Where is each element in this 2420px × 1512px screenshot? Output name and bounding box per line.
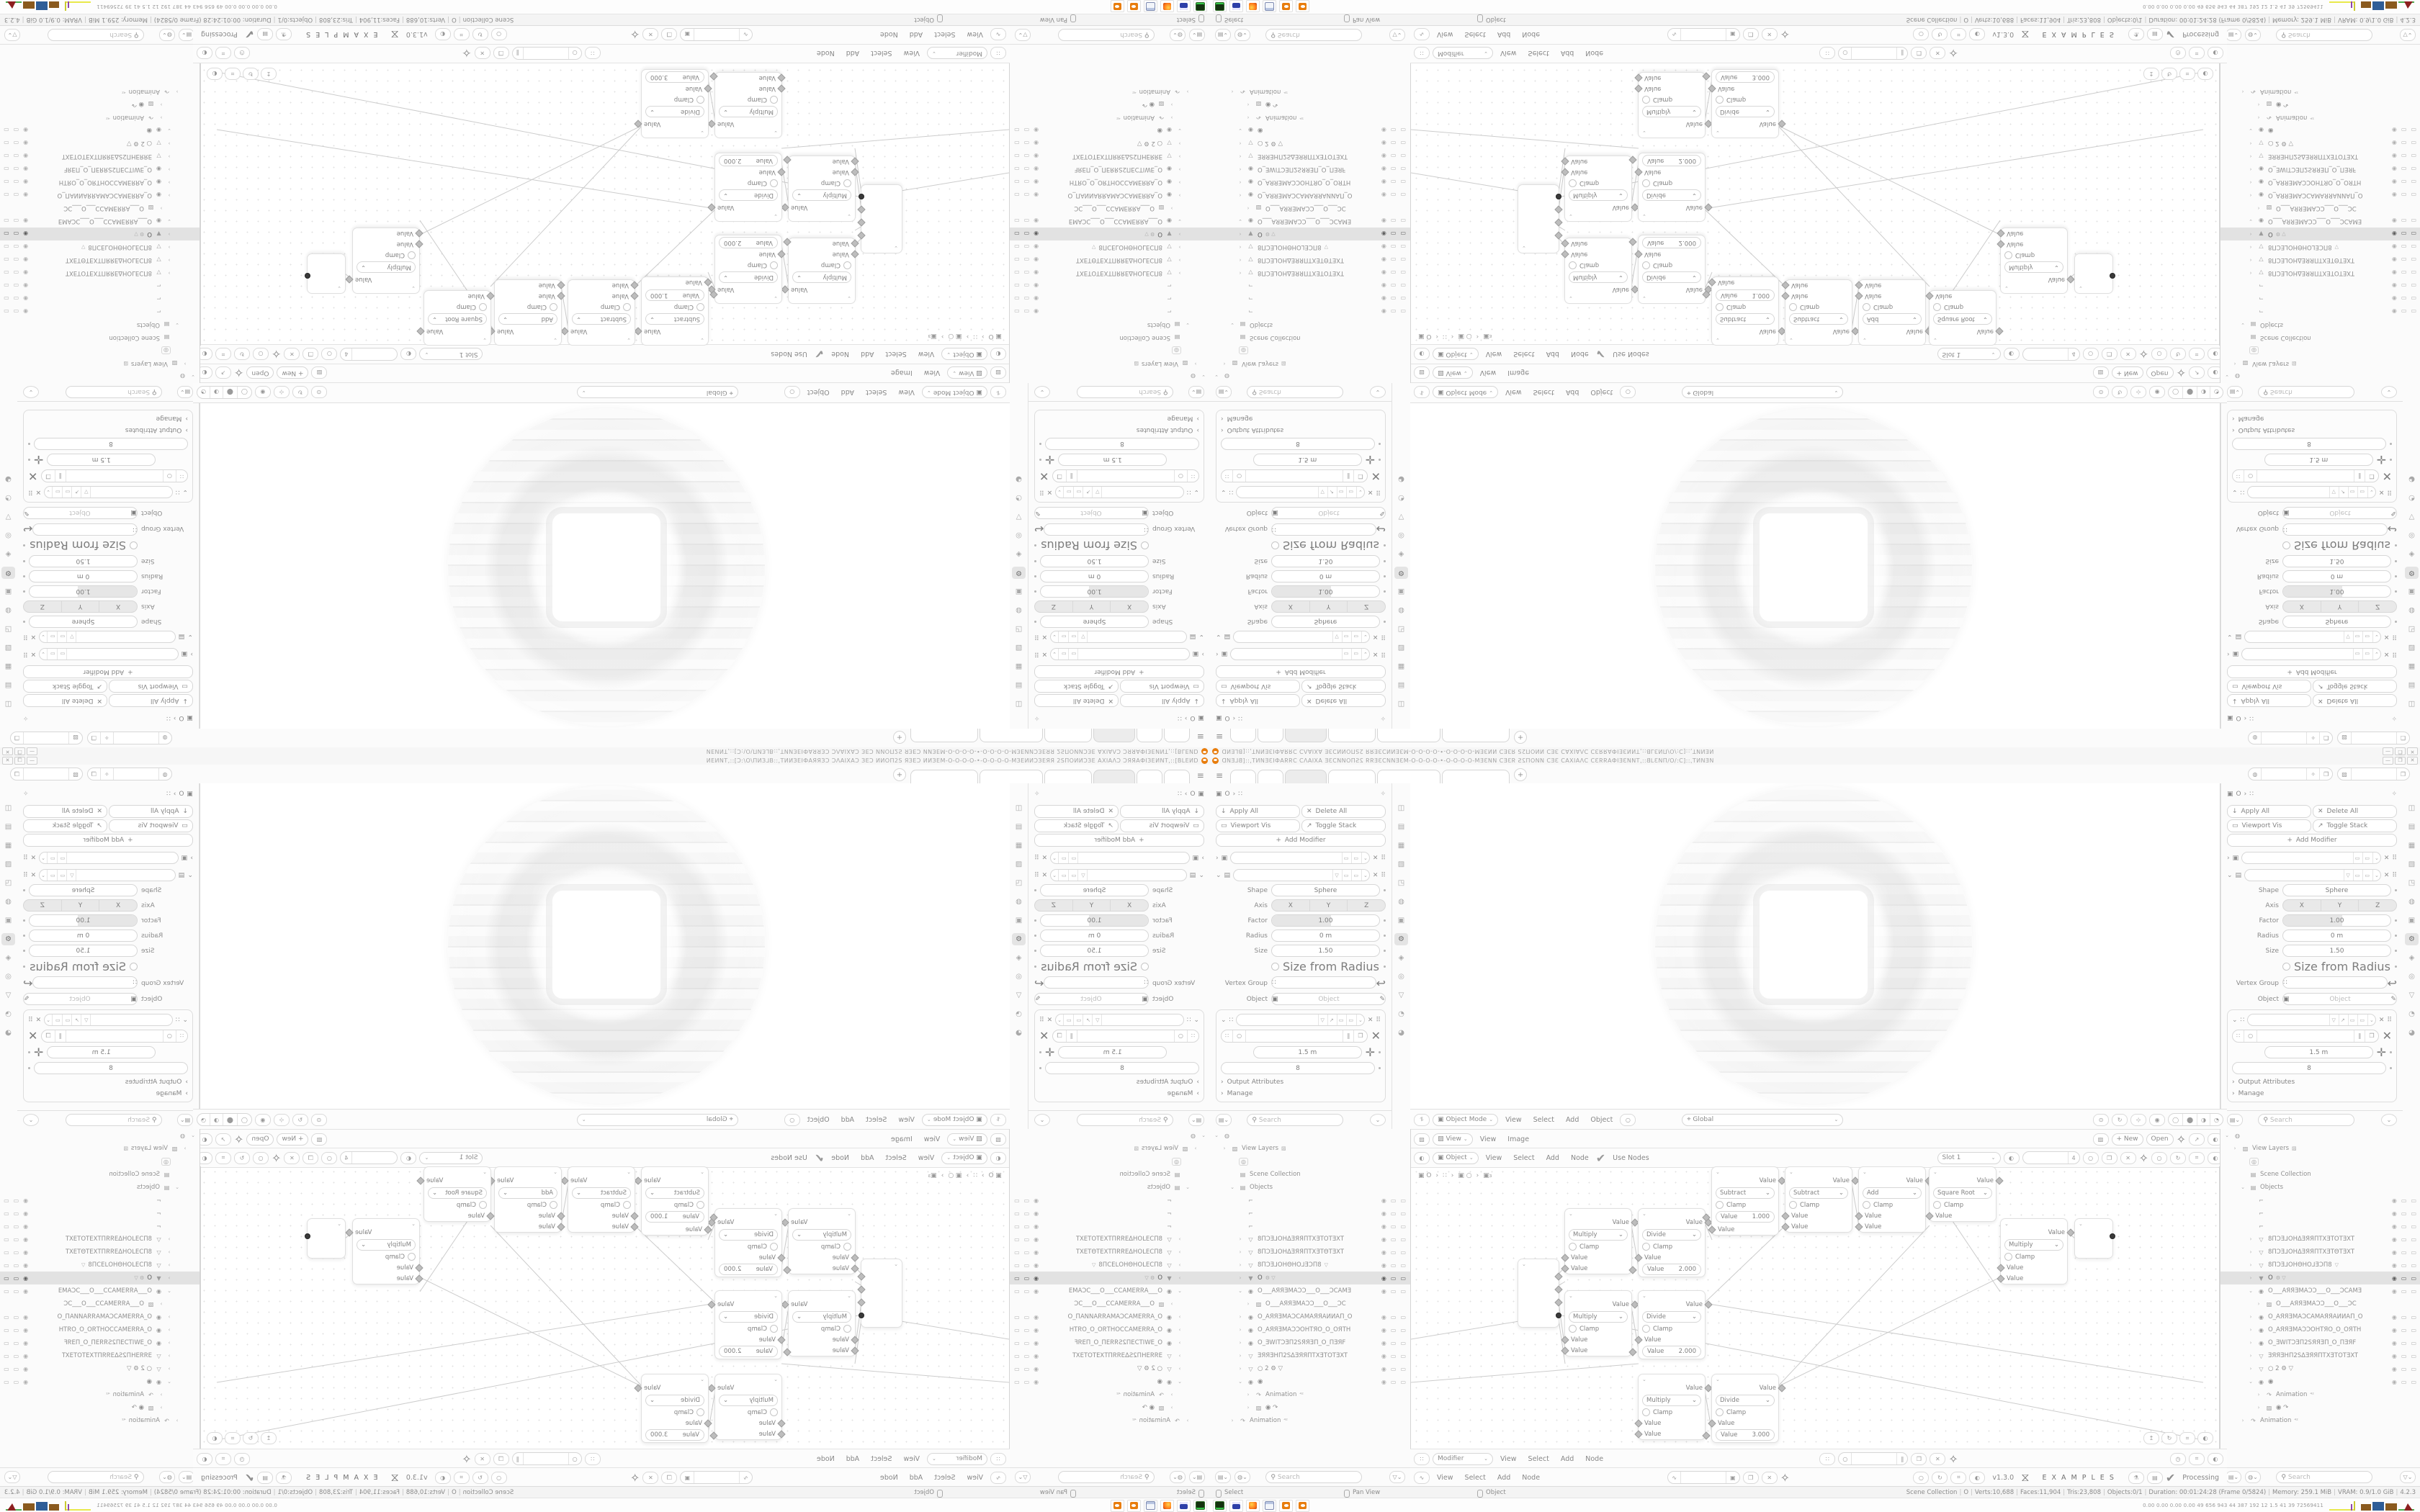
input-socket[interactable]: [1996, 230, 2004, 238]
node-math-multiply[interactable]: ⌄ValueMultiply⌄ClampValueValue: [1638, 72, 1706, 138]
nodetree-name-input[interactable]: [1852, 1453, 1897, 1464]
hide-viewport-toggle[interactable]: ◉: [1381, 1236, 1386, 1243]
outliner-row[interactable]: ⌐◉▭▭: [1210, 1207, 1410, 1220]
remove-modifier-button[interactable]: ✕: [2384, 634, 2390, 641]
workspace-tab[interactable]: [980, 729, 1043, 742]
clamp-checkbox[interactable]: [1716, 96, 1724, 104]
outliner-row[interactable]: ›◉O_AЯЯƎMAƆCAMAЯЯAИИAП_O◉▭▭: [1010, 189, 1210, 202]
unlink-button[interactable]: ✕: [1762, 1472, 1778, 1484]
browse-icon[interactable]: ○: [163, 1030, 176, 1042]
expand-icon[interactable]: ›: [2227, 855, 2230, 862]
modifier-name-field[interactable]: ▭▭⌄: [2241, 852, 2381, 864]
menu-node[interactable]: Node: [831, 351, 849, 359]
node-blank[interactable]: ⌄: [1518, 184, 1559, 253]
disable-render-toggle[interactable]: ▭: [2411, 270, 2416, 276]
geonodes-type-dropdown[interactable]: Modifier⌄: [1433, 1453, 1493, 1465]
add-modifier-button[interactable]: +Add Modifier: [23, 665, 193, 678]
nodegroup-name[interactable]: [66, 1030, 163, 1042]
properties-tab-icon[interactable]: ◕: [1, 473, 15, 485]
geonodes-count-field[interactable]: 8: [2232, 438, 2386, 450]
filter-dropdown[interactable]: ▽⌄: [2400, 1471, 2416, 1483]
copy-icon[interactable]: ❐: [493, 1453, 509, 1465]
output-attributes-panel[interactable]: ›Output Attributes: [28, 426, 188, 433]
outliner-row[interactable]: ⌄◉O___AЯЯƎMAƆƆ___O___ƆCAMƎ◉▭▭: [1010, 1284, 1210, 1297]
operation-dropdown[interactable]: Divide⌄: [645, 1395, 704, 1406]
outliner-row[interactable]: ›▼O⚙ ▽◉▭▭: [1010, 228, 1210, 240]
disable-render-toggle[interactable]: ▭: [1014, 1210, 1020, 1217]
copy-icon[interactable]: ❐: [2365, 1030, 2378, 1042]
hide-viewport-toggle[interactable]: ◉: [23, 218, 28, 225]
new-image-button[interactable]: + New: [277, 367, 308, 379]
disable-viewport-toggle[interactable]: ▭: [1391, 140, 1397, 147]
workspace-tab[interactable]: [1328, 770, 1376, 783]
drag-handle[interactable]: ⠿: [1376, 489, 1381, 496]
expand-icon[interactable]: ›: [166, 140, 173, 146]
disable-render-toggle[interactable]: ▭: [4, 1379, 9, 1385]
input-socket[interactable]: [1996, 240, 2004, 248]
editor-type-dropdown[interactable]: ∷: [990, 48, 1006, 60]
viewlayer-icon[interactable]: ▨: [2338, 732, 2352, 744]
properties-tab-icon[interactable]: ▦: [1012, 840, 1026, 852]
outliner-row[interactable]: ›▽8ПƆƎ⅃OHΘHO⅃ƎƆП8▽◉▭▭: [1010, 1259, 1210, 1272]
nodetree-icon[interactable]: ∷: [2233, 471, 2244, 482]
disable-viewport-toggle[interactable]: ▭: [2401, 231, 2407, 238]
expand-icon[interactable]: ›: [166, 1340, 173, 1346]
filter-icon[interactable]: ▽: [1094, 487, 1101, 498]
camera-icon[interactable]: ▭: [1065, 1014, 1074, 1025]
expand-icon[interactable]: ›: [1221, 1090, 1224, 1097]
viewport-tool-icon[interactable]: ⊙: [311, 387, 327, 399]
disable-render-toggle[interactable]: ▭: [1014, 1262, 1020, 1269]
remove-modifier-button[interactable]: ✕: [1368, 489, 1373, 496]
disable-viewport-toggle[interactable]: ▭: [1024, 1223, 1030, 1230]
operation-dropdown[interactable]: Add⌄: [498, 1187, 557, 1199]
sync-dropdown[interactable]: ◍⌄: [159, 1471, 175, 1483]
object-picker-field[interactable]: ▣Object✎: [23, 993, 138, 1005]
outliner-row[interactable]: ›▼O⚙ ▽◉▭▭: [0, 1272, 200, 1284]
size-from-radius-radio[interactable]: [1271, 541, 1279, 549]
outliner-row[interactable]: ›▽8ПƆƎ⅃OHΔƎЯЯПTXƎTOTƎXT◉▭▭: [2220, 266, 2420, 279]
assign-icon[interactable]: ↩: [1376, 522, 1386, 536]
hide-viewport-toggle[interactable]: ◉: [2392, 1327, 2397, 1333]
material-name-input[interactable]: [2023, 348, 2069, 360]
properties-tab-icon[interactable]: ▣: [2405, 585, 2419, 598]
expand-icon[interactable]: ›: [2247, 166, 2254, 172]
properties-tab-icon[interactable]: ◕: [1394, 1027, 1408, 1039]
operation-dropdown[interactable]: Subtract⌄: [1716, 1187, 1775, 1199]
modifier-name-field[interactable]: ▽▭▭⌄: [39, 631, 176, 643]
nodetree-icon[interactable]: ∷: [1819, 1453, 1835, 1465]
disable-render-toggle[interactable]: ▭: [4, 127, 9, 134]
shape-dropdown[interactable]: Sphere: [1271, 884, 1380, 896]
input-socket[interactable]: [1561, 168, 1569, 176]
menu-select[interactable]: Select: [934, 1474, 955, 1482]
input-socket[interactable]: [1634, 1430, 1642, 1438]
hide-viewport-toggle[interactable]: ◉: [2392, 1236, 2397, 1243]
axis-z-toggle[interactable]: Z: [1348, 900, 1385, 911]
node-collapse-icon[interactable]: ⌄: [1712, 1374, 1778, 1384]
menu-add[interactable]: Add: [1566, 389, 1579, 397]
shape-dropdown[interactable]: Sphere: [1271, 616, 1380, 628]
factor-slider[interactable]: 1.00: [1271, 585, 1380, 598]
hide-viewport-toggle[interactable]: ◉: [23, 153, 28, 160]
expand-icon[interactable]: ›: [1229, 89, 1236, 94]
expand-icon[interactable]: ⌄: [1216, 634, 1222, 641]
properties-tab-icon[interactable]: ◍: [1012, 604, 1026, 616]
modifiers-tab-icon[interactable]: ⚙: [1, 567, 15, 579]
workspace-tab[interactable]: [910, 729, 978, 742]
back-icon[interactable]: ↻: [2161, 1432, 2177, 1444]
back-icon[interactable]: ↻: [2161, 68, 2177, 80]
nodetree-name-field[interactable]: ○‖: [512, 1452, 582, 1465]
hide-viewport-toggle[interactable]: ◉: [1034, 257, 1039, 264]
disable-viewport-toggle[interactable]: ▭: [2401, 1223, 2407, 1230]
disable-render-toggle[interactable]: ▭: [1400, 231, 1406, 238]
disable-viewport-toggle[interactable]: ▭: [1391, 244, 1397, 251]
mode-dropdown[interactable]: ▣Object Mode⌄: [922, 387, 987, 399]
modifier-name-field[interactable]: ▽↗▭▭⌄: [1055, 1014, 1184, 1026]
modifier-header[interactable]: ⌄▤▽▭▭⌄✕⠿: [1216, 631, 1386, 643]
radius-field[interactable]: 0 m: [1271, 930, 1380, 942]
vis-icon[interactable]: ▭: [1070, 852, 1079, 863]
disable-render-toggle[interactable]: ▭: [2411, 1353, 2416, 1359]
properties-tab-icon[interactable]: ▧: [1012, 858, 1026, 870]
clamp-checkbox[interactable]: [696, 1408, 704, 1416]
properties-tab-icon[interactable]: ◈: [1, 548, 15, 560]
outliner-row[interactable]: ▤Scene Collection: [2220, 1168, 2420, 1181]
expand-icon[interactable]: ›: [2255, 1405, 2262, 1410]
eyedropper-icon[interactable]: ✎: [1035, 996, 1041, 1003]
modifier-name-field[interactable]: ▽▭▭⌄: [39, 869, 176, 881]
expand-icon[interactable]: ⌄: [1221, 1017, 1227, 1024]
hide-viewport-toggle[interactable]: ◉: [23, 1262, 28, 1269]
disable-viewport-toggle[interactable]: ▭: [1024, 127, 1030, 134]
node-collapse-icon[interactable]: ⌄: [715, 128, 781, 138]
radius-field[interactable]: 0 m: [1271, 570, 1380, 582]
disable-render-toggle[interactable]: ▭: [2411, 1288, 2416, 1295]
viewport-vis-button[interactable]: ▭Viewport Vis: [1120, 819, 1204, 832]
expand-icon[interactable]: ›: [1176, 140, 1183, 146]
input-socket[interactable]: [1781, 282, 1789, 289]
vis-icon[interactable]: ▭: [1075, 487, 1084, 498]
mode-dropdown[interactable]: ▣Object Mode⌄: [1433, 387, 1498, 399]
properties-tab-icon[interactable]: ▽: [2405, 989, 2419, 1002]
clamp-checkbox[interactable]: [770, 1325, 778, 1333]
manage-panel[interactable]: ›Manage: [1039, 1090, 1199, 1097]
disable-render-toggle[interactable]: ▭: [2411, 166, 2416, 173]
viewport-tool-icon[interactable]: ⊹: [274, 1114, 290, 1126]
disable-viewport-toggle[interactable]: ▭: [1391, 192, 1397, 199]
hide-viewport-toggle[interactable]: ◉: [2392, 153, 2397, 160]
disable-render-toggle[interactable]: ▭: [2411, 192, 2416, 199]
properties-tab-icon[interactable]: ▽: [1, 510, 15, 523]
properties-tab-icon[interactable]: ▦: [2405, 660, 2419, 672]
output-socket[interactable]: [560, 1176, 568, 1184]
outliner-row[interactable]: ›▽○ 2 ⚙ ▽◉▭▭: [1010, 137, 1210, 150]
expand-icon[interactable]: ›: [166, 1262, 173, 1268]
outliner-row[interactable]: ›▽8ПƆƎ⅃OHΔƎЯЯПTXƎTΘTƎXT◉▭▭: [1210, 1246, 1410, 1259]
back-icon[interactable]: ↻: [243, 68, 259, 80]
modifiers-tab-icon[interactable]: ⚙: [2405, 933, 2419, 945]
geo-header-icon[interactable]: ◷: [234, 1453, 250, 1465]
properties-tab-icon[interactable]: ▧: [1394, 858, 1408, 870]
geonodes-size-field[interactable]: 1.5 m: [1253, 454, 1362, 466]
disable-render-toggle[interactable]: ▭: [4, 1353, 9, 1359]
menu-select[interactable]: Select: [1528, 1455, 1549, 1463]
menu-object[interactable]: Object: [807, 1116, 830, 1124]
expand-icon[interactable]: ›: [1192, 1146, 1199, 1151]
disable-viewport-toggle[interactable]: ▭: [1391, 1275, 1397, 1282]
menu-view[interactable]: View: [898, 389, 915, 397]
outliner-row[interactable]: ▤Scene Collection: [2220, 331, 2420, 344]
disable-viewport-toggle[interactable]: ▭: [1024, 166, 1030, 173]
modifier-name-field[interactable]: ▭▭⌄: [39, 852, 179, 864]
expand-icon[interactable]: ›: [1176, 166, 1183, 172]
disable-render-toggle[interactable]: ▭: [2411, 296, 2416, 302]
vis-icon[interactable]: ▭: [1337, 1014, 1345, 1025]
expand-icon[interactable]: ›: [1216, 651, 1219, 658]
properties-tab-icon[interactable]: ◳: [1012, 623, 1026, 635]
copy-icon[interactable]: ❐: [2102, 1152, 2117, 1164]
viewport-3d[interactable]: [1410, 383, 2220, 729]
menu-add[interactable]: Add: [1561, 1455, 1574, 1463]
expand-icon[interactable]: ›: [1237, 1275, 1244, 1281]
expand-icon[interactable]: ›: [1237, 1353, 1244, 1359]
sim-header-icon[interactable]: ◐: [435, 29, 451, 41]
output-socket[interactable]: [857, 218, 865, 226]
node-canvas[interactable]: ▣ O›∷›▣ ○›▣₃⌄⌄ValueMultiply⌄ClampValueVa…: [200, 1166, 1010, 1449]
options-dropdown[interactable]: ⌄: [1034, 1114, 1050, 1126]
nodetree-name-input[interactable]: [1852, 48, 1897, 59]
scene-selector[interactable]: ◍✧❐: [87, 768, 172, 780]
node-collapse-icon[interactable]: ⌄: [642, 1374, 708, 1384]
menu-view[interactable]: View: [1500, 1455, 1517, 1463]
viewlayer-icon[interactable]: ▨: [2338, 768, 2352, 780]
expand-icon[interactable]: ⌄: [1216, 872, 1222, 879]
viewport-tool-icon[interactable]: ↻: [2112, 1114, 2128, 1126]
disable-viewport-toggle[interactable]: ▭: [1024, 296, 1030, 302]
menu-image[interactable]: Image: [891, 1135, 913, 1143]
operation-dropdown[interactable]: Subtract⌄: [645, 313, 704, 325]
collapse-icon[interactable]: ⌄: [2247, 218, 2254, 224]
material-name-input[interactable]: [352, 348, 398, 360]
disable-render-toggle[interactable]: ▭: [1014, 1327, 1020, 1333]
disable-render-toggle[interactable]: ▭: [1400, 309, 1406, 315]
stack-icon[interactable]: ↗: [1327, 1014, 1335, 1025]
properties-tab-icon[interactable]: ▦: [2405, 840, 2419, 852]
apply-all-button[interactable]: ↓Apply All: [2227, 805, 2311, 818]
filter-dropdown[interactable]: ▽⌄: [1015, 29, 1031, 41]
chevron-icon[interactable]: ⌄: [2367, 487, 2375, 498]
modifier-header[interactable]: ⌄∷▽↗▭▭⌄✕⠿: [2232, 1014, 2392, 1026]
modifier-header[interactable]: ›▣▭▭⌄✕⠿: [23, 648, 193, 660]
material-icon[interactable]: ◐: [401, 348, 417, 361]
hide-viewport-toggle[interactable]: ◉: [1381, 296, 1386, 302]
clamp-checkbox[interactable]: [623, 303, 631, 311]
expand-icon[interactable]: ›: [1237, 1366, 1244, 1372]
expand-icon[interactable]: ›: [1176, 270, 1183, 276]
taskbar-app-calculator[interactable]: [1263, 1, 1276, 13]
close-button[interactable]: ✕: [2, 757, 13, 765]
node-math-multiply[interactable]: ⌄ValueMultiply⌄ClampValueValue: [2000, 228, 2068, 294]
value-input-field[interactable]: Value3.000: [645, 1429, 704, 1441]
input-socket[interactable]: [1561, 158, 1569, 166]
image-browse-icon[interactable]: ▨: [312, 367, 328, 379]
disable-viewport-toggle[interactable]: ▭: [1024, 1327, 1030, 1333]
outliner-row[interactable]: ›▽○ 2 ⚙ ▽◉▭▭: [1210, 137, 1410, 150]
shading-mode-group[interactable]: ◯⬤◑◔: [2168, 1113, 2223, 1126]
expand-icon[interactable]: ›: [1176, 153, 1183, 159]
workspace-tab[interactable]: [1377, 770, 1440, 783]
properties-tab-icon[interactable]: ◎: [1, 529, 15, 541]
properties-tab-icon[interactable]: ◍: [1, 896, 15, 908]
radius-field[interactable]: 0 m: [1040, 570, 1149, 582]
node-blank[interactable]: ⌄: [861, 1259, 902, 1328]
properties-tab-icon[interactable]: ▤: [1394, 821, 1408, 833]
node-blank[interactable]: ⌄: [307, 1218, 346, 1259]
expand-icon[interactable]: ›: [2247, 1340, 2254, 1346]
expand-icon[interactable]: ›: [174, 89, 181, 94]
outliner-row[interactable]: ⌄▤Objects: [1010, 1181, 1210, 1194]
pin-icon[interactable]: ✧: [1380, 791, 1386, 798]
expand-icon[interactable]: ›: [2255, 114, 2262, 120]
menu-view[interactable]: View: [1486, 1154, 1502, 1162]
expand-icon[interactable]: ›: [166, 244, 173, 250]
hide-viewport-toggle[interactable]: ◉: [23, 1353, 28, 1359]
taskbar-app-save-64[interactable]: [1177, 1, 1191, 13]
axis-toggle-group[interactable]: XYZ: [23, 600, 138, 613]
remove-modifier-button[interactable]: ✕: [2384, 651, 2390, 658]
node-math-multiply[interactable]: ⌄ValueMultiply⌄ClampValueValue: [1564, 1208, 1632, 1274]
hide-viewport-toggle[interactable]: ◉: [2392, 179, 2397, 186]
viewport-tool-icon[interactable]: ⊹: [2130, 387, 2146, 399]
outliner-row[interactable]: ⌐◉▭▭: [1210, 1220, 1410, 1233]
collapse-icon[interactable]: ⌄: [1200, 374, 1207, 379]
outliner-row[interactable]: ›▨View Layers▨: [1010, 357, 1210, 370]
apply-all-button[interactable]: ↓Apply All: [109, 805, 193, 818]
output-socket[interactable]: [857, 1285, 865, 1293]
disable-render-toggle[interactable]: ▭: [1014, 309, 1020, 315]
input-socket[interactable]: [851, 168, 859, 176]
filter-dropdown[interactable]: ▽⌄: [4, 29, 20, 41]
editor-type-dropdown[interactable]: ⥮: [990, 387, 1006, 399]
disable-render-toggle[interactable]: ▭: [1014, 1197, 1020, 1204]
material-name-field[interactable]: 4: [2022, 1151, 2080, 1164]
axis-x-toggle[interactable]: X: [1272, 601, 1310, 612]
shading-mode-icon[interactable]: ◑: [210, 1114, 223, 1125]
properties-tab-icon[interactable]: ▧: [1394, 642, 1408, 654]
disable-viewport-toggle[interactable]: ▭: [14, 231, 19, 238]
outliner-row[interactable]: ⌄▤Objects: [0, 318, 200, 331]
menu-icon[interactable]: ≡: [1216, 732, 1223, 742]
disable-viewport-toggle[interactable]: ▭: [1024, 309, 1030, 315]
chevron-icon[interactable]: ⌄: [1051, 870, 1059, 881]
axis-toggle-group[interactable]: XYZ: [23, 899, 138, 912]
clamp-checkbox[interactable]: [1642, 1243, 1650, 1251]
filter-dropdown[interactable]: ▽⌄: [1015, 1471, 1031, 1483]
disable-viewport-toggle[interactable]: ▭: [14, 309, 19, 315]
editor-type-dropdown[interactable]: ▨: [990, 367, 1006, 379]
outliner-row-animation[interactable]: ›↷Animation⁴²: [0, 85, 200, 98]
hide-viewport-toggle[interactable]: ◉: [1381, 1262, 1386, 1269]
vis-icon[interactable]: ▭: [1070, 870, 1079, 881]
disable-render-toggle[interactable]: ▭: [1400, 1210, 1406, 1217]
input-socket[interactable]: [1708, 1225, 1716, 1233]
expand-icon[interactable]: ›: [190, 855, 193, 862]
node-math-multiply[interactable]: ⌄ValueMultiply⌄ClampValueValue: [788, 156, 856, 222]
output-attributes-panel[interactable]: ›Output Attributes: [2232, 1079, 2392, 1086]
outliner-row[interactable]: ⌐◉▭▭: [1010, 1194, 1210, 1207]
input-socket[interactable]: [1708, 1419, 1716, 1427]
output-socket[interactable]: [416, 327, 424, 335]
disable-render-toggle[interactable]: ▭: [1400, 1262, 1406, 1269]
disable-viewport-toggle[interactable]: ▭: [14, 127, 19, 134]
disable-viewport-toggle[interactable]: ▭: [14, 192, 19, 199]
input-socket[interactable]: [777, 1254, 785, 1261]
orientation-dropdown[interactable]: ⌖Global⌄: [1682, 1114, 1843, 1126]
value-input-field[interactable]: Value2.000: [719, 1264, 778, 1275]
copy-icon[interactable]: ❐: [42, 1030, 54, 1042]
node-math-multiply[interactable]: ⌄ValueMultiply⌄ClampValueValue: [788, 1290, 856, 1356]
remove-modifier-button[interactable]: ✕: [1373, 651, 1379, 658]
axis-y-toggle[interactable]: Y: [1310, 601, 1348, 612]
new-image-button[interactable]: + New: [2112, 367, 2143, 379]
outliner-row[interactable]: ›▽8ПƆƎ⅃OHΔƎЯЯПTXƎTOTƎXT◉▭▭: [1010, 1233, 1210, 1246]
node-collapse-icon[interactable]: ⌄: [424, 1167, 490, 1176]
disable-viewport-toggle[interactable]: ▭: [2401, 140, 2407, 147]
clamp-checkbox[interactable]: [843, 1243, 851, 1251]
disable-viewport-toggle[interactable]: ▭: [1391, 309, 1397, 315]
disable-viewport-toggle[interactable]: ▭: [1024, 1314, 1030, 1320]
pin-icon[interactable]: ✧: [2139, 348, 2148, 361]
shape-dropdown[interactable]: Sphere: [1040, 884, 1149, 896]
expand-icon[interactable]: ›: [1237, 270, 1244, 276]
remove-modifier-button[interactable]: ✕: [2379, 489, 2385, 496]
editor-type-dropdown[interactable]: ∿: [990, 29, 1006, 41]
orientation-dropdown[interactable]: ⌖Global⌄: [1682, 387, 1843, 399]
viewport-tool-icon[interactable]: ⊹: [274, 387, 290, 399]
outliner-search-field[interactable]: ⚲Search: [2276, 29, 2372, 41]
shading-mode-group[interactable]: ◯⬤◑◔: [2168, 386, 2223, 399]
remove-modifier-button[interactable]: ✕: [31, 855, 37, 862]
hide-viewport-toggle[interactable]: ◉: [1381, 1379, 1386, 1385]
properties-tab-icon[interactable]: ◫: [1394, 698, 1408, 710]
menu-view[interactable]: View: [967, 31, 983, 39]
minimize-button[interactable]: —: [2383, 748, 2393, 756]
outliner-search-field[interactable]: ⚲Search: [2276, 1471, 2372, 1483]
axis-y-toggle[interactable]: Y: [1072, 900, 1111, 911]
chevron-icon[interactable]: ⌄: [1361, 649, 1369, 660]
input-socket[interactable]: [851, 1264, 859, 1272]
properties-tab-icon[interactable]: ◕: [1012, 473, 1026, 485]
editor-type-dropdown[interactable]: ◐: [990, 1152, 1006, 1164]
filter-icon[interactable]: ▽: [1332, 631, 1340, 642]
copy-icon[interactable]: ❐: [661, 29, 677, 41]
size-field[interactable]: 1.50: [2282, 555, 2391, 567]
expand-icon[interactable]: ›: [1176, 1275, 1183, 1281]
operation-dropdown[interactable]: Subtract⌄: [1716, 313, 1775, 325]
viewport-vis-button[interactable]: ▭Viewport Vis: [2227, 819, 2311, 832]
disable-render-toggle[interactable]: ▭: [1400, 1236, 1406, 1243]
output-attributes-panel[interactable]: ›Output Attributes: [2232, 426, 2392, 433]
disable-render-toggle[interactable]: ▭: [1014, 1353, 1020, 1359]
modifier-name-field[interactable]: ▽↗▭▭⌄: [44, 486, 173, 498]
taskbar-app-terminal[interactable]: [1193, 1, 1207, 13]
operation-dropdown[interactable]: Multiply⌄: [2004, 261, 2063, 273]
clamp-checkbox[interactable]: [696, 303, 704, 311]
stack-icon[interactable]: ↗: [2339, 1014, 2347, 1025]
vis-icon[interactable]: ▭: [64, 487, 73, 498]
